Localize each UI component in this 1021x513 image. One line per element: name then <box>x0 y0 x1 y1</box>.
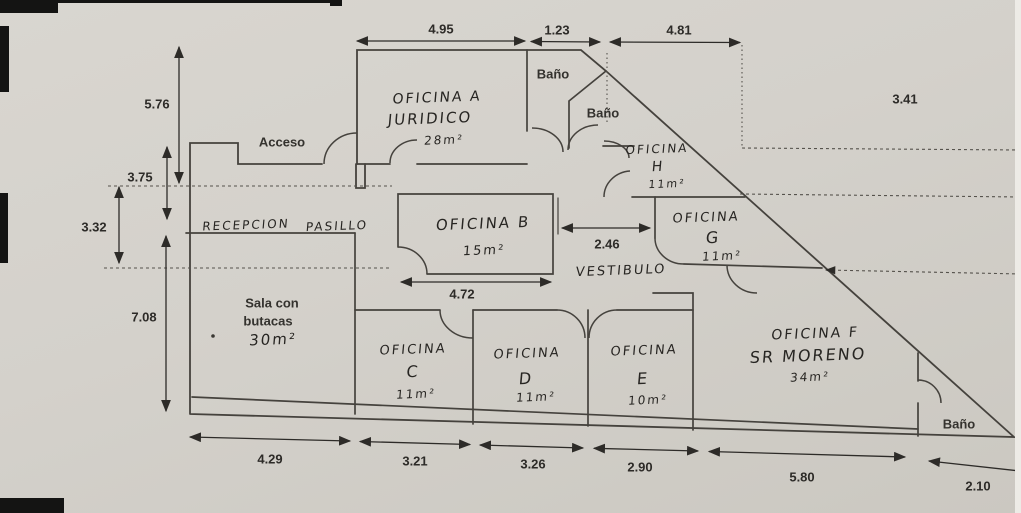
recepcion-label: RECEPCION <box>202 217 290 232</box>
dim-bottom-6: 2.10 <box>965 480 990 493</box>
oficina-f-area: 34m² <box>790 370 831 383</box>
sala-label-line1: Sala con <box>245 297 298 310</box>
dim-oficina-b-width: 4.72 <box>449 288 474 301</box>
acceso-label: Acceso <box>259 136 305 149</box>
oficina-g-area: 11m² <box>702 249 743 262</box>
floor-plan-drawing <box>0 0 1021 513</box>
dim-top-1: 4.95 <box>428 23 453 36</box>
oficina-e-name: OFICINA <box>610 343 678 358</box>
oficina-e-area: 10m² <box>628 393 669 406</box>
floor-plan-document: 4.95 1.23 4.81 3.41 5.76 3.75 3.32 7.08 … <box>0 0 1021 513</box>
oficina-f-owner: SR MORENO <box>749 346 867 366</box>
bano-top-label: Baño <box>537 68 570 81</box>
sala-area: 30m² <box>248 332 297 349</box>
oficina-h-name: OFICINA <box>625 142 689 156</box>
oficina-d-letter: D <box>518 371 534 388</box>
oficina-a-name: OFICINA A <box>392 89 482 106</box>
dim-left-2: 3.75 <box>127 171 152 184</box>
dim-top-2: 1.23 <box>544 24 569 37</box>
photo-edge <box>1015 0 1021 513</box>
oficina-a-area: 28m² <box>424 133 465 146</box>
oficina-h-area: 11m² <box>648 178 686 190</box>
oficina-b-area: 15m² <box>462 244 506 259</box>
oficina-b-name: OFICINA B <box>435 215 531 233</box>
dim-bottom-4: 2.90 <box>627 461 652 474</box>
oficina-a-subname: JURIDICO <box>387 110 473 128</box>
dim-left-3: 3.32 <box>81 221 106 234</box>
oficina-f-name: OFICINA F <box>771 325 860 342</box>
dim-top-right: 3.41 <box>892 93 917 106</box>
oficina-c-letter: C <box>406 364 421 381</box>
dim-bottom-5: 5.80 <box>789 471 814 484</box>
pasillo-label: PASILLO <box>305 219 368 233</box>
oficina-d-name: OFICINA <box>493 346 561 361</box>
vestibulo-label: VESTIBULO <box>575 263 667 279</box>
bano-mid-label: Baño <box>587 107 620 120</box>
oficina-h-letter: H <box>651 160 665 174</box>
oficina-g-letter: G <box>705 230 721 247</box>
oficina-e-letter: E <box>636 371 650 387</box>
oficina-c-area: 11m² <box>396 387 437 400</box>
scan-artifacts <box>0 0 342 513</box>
dim-top-3: 4.81 <box>666 24 691 37</box>
dim-left-1: 5.76 <box>144 98 169 111</box>
bano-bottom-right-label: Baño <box>943 418 976 431</box>
dim-vestibulo-width: 2.46 <box>594 238 619 251</box>
dim-bottom-3: 3.26 <box>520 458 545 471</box>
oficina-d-area: 11m² <box>516 390 557 403</box>
sala-label-line2: butacas <box>243 315 292 328</box>
dim-left-4: 7.08 <box>131 311 156 324</box>
dim-bottom-2: 3.21 <box>402 455 427 468</box>
dim-bottom-1: 4.29 <box>257 453 282 466</box>
oficina-c-name: OFICINA <box>379 342 447 357</box>
oficina-g-name: OFICINA <box>672 210 740 225</box>
